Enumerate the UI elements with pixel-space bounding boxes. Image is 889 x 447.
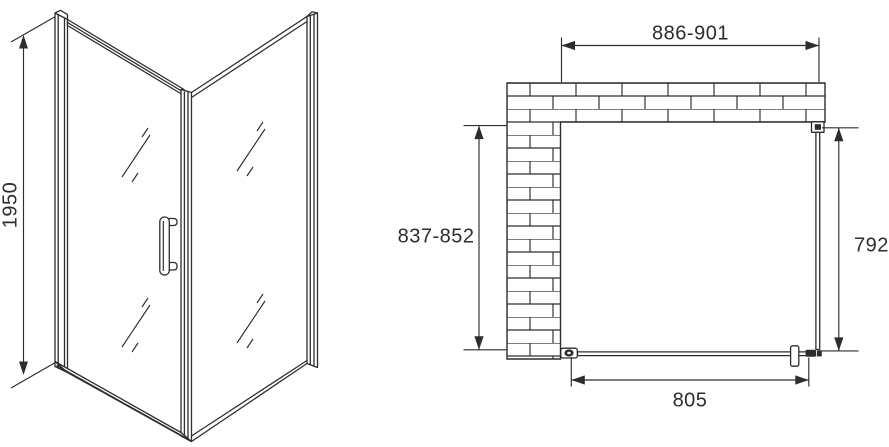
arrow-left-icon (571, 375, 585, 384)
depth-dimension-label: 837-852 (398, 226, 475, 248)
side-panel-dimension: 792 (820, 128, 889, 351)
handle-knob-plan (791, 346, 799, 366)
door-bottom-rail (55, 362, 192, 442)
side-panel-edges (192, 17, 308, 442)
arrow-up-icon (834, 128, 843, 142)
shine-mark (237, 294, 265, 348)
width-dimension-label: 886-901 (652, 23, 729, 45)
height-dimension: 1950 (0, 15, 58, 388)
width-dimension: 886-901 (562, 23, 820, 83)
height-dimension-label: 1950 (0, 182, 22, 229)
plan-view: 886-901 837-852 792 (398, 23, 889, 412)
side-glass-panel-plan (816, 132, 820, 350)
glass-shine-marks (122, 122, 265, 352)
hinge-wall-profile (55, 10, 68, 372)
extension-line-top (11, 15, 58, 42)
door-hinge (561, 348, 578, 358)
arrow-down-icon (19, 362, 28, 376)
arrow-right-icon (806, 41, 820, 50)
door-handle (160, 217, 177, 275)
depth-dimension: 837-852 (398, 126, 507, 350)
shine-mark (122, 128, 150, 182)
side-panel-dimension-label: 792 (854, 235, 889, 257)
handle-bar (160, 217, 170, 275)
arrow-left-icon (562, 41, 576, 50)
corner-post (181, 90, 192, 442)
extension-line-bottom (11, 361, 58, 388)
door-width-dimension-label: 805 (673, 390, 708, 412)
arrow-right-icon (795, 375, 809, 384)
arrow-down-icon (834, 337, 843, 351)
drawing-canvas: 1950 (0, 0, 889, 447)
corner-connector (806, 350, 822, 357)
shine-mark (122, 298, 150, 352)
wall-bracket (812, 122, 825, 133)
arrow-up-icon (474, 126, 483, 140)
brick-wall (507, 83, 825, 359)
door-top-rail (68, 20, 185, 96)
side-panel-wall-profile (307, 12, 318, 368)
elevation-view: 1950 (0, 10, 318, 441)
shine-mark (237, 122, 265, 176)
shower-enclosure-technical-drawing: 1950 (0, 0, 889, 447)
door-glass-plan (578, 352, 808, 356)
door-width-dimension: 805 (571, 357, 809, 412)
arrow-down-icon (474, 336, 483, 350)
